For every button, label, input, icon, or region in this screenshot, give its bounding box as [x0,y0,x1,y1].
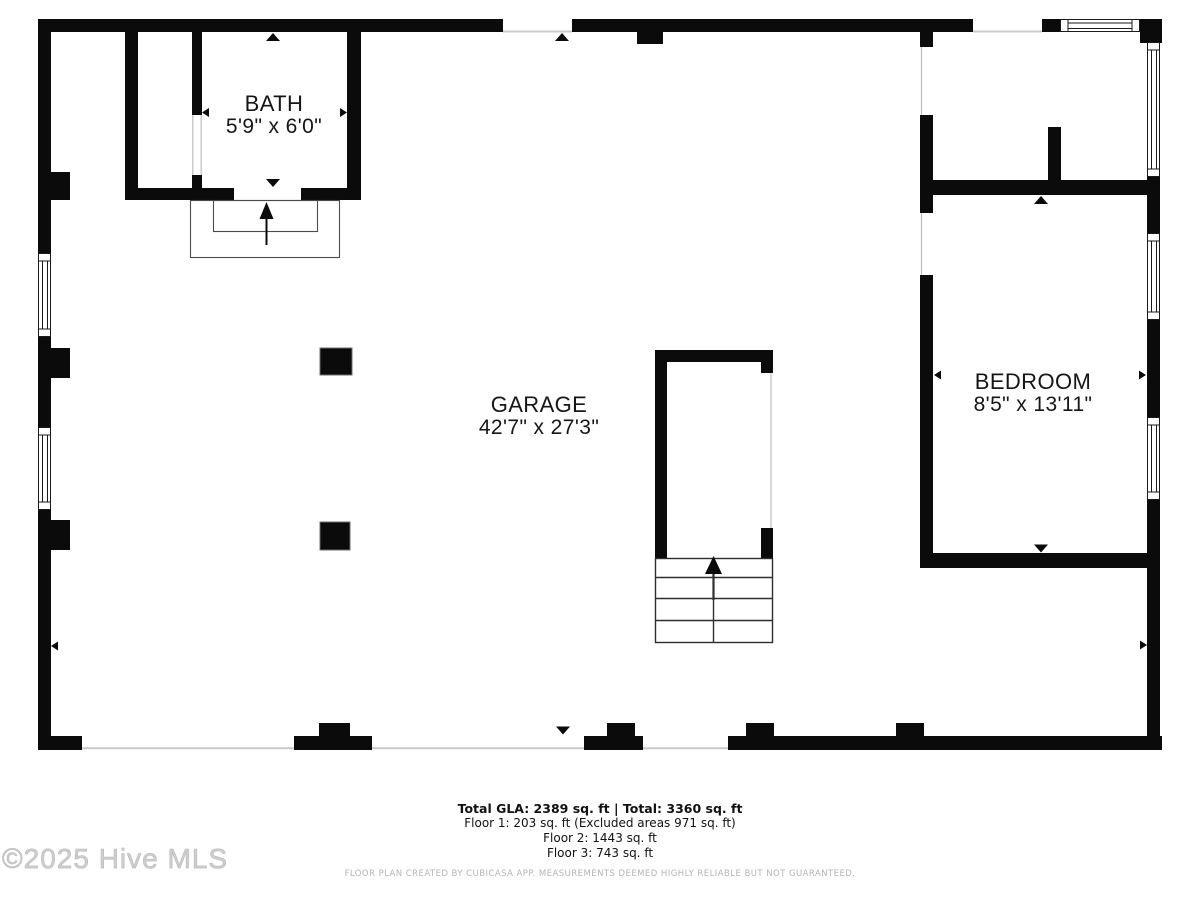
wall-segment [38,19,51,253]
dim-arrow-up [1034,196,1048,204]
stair-direction-arrow [260,202,274,219]
dim-arrow-up [555,33,569,41]
columns [320,348,352,550]
bath-landing-steps [191,201,340,258]
wall-stub [896,723,924,736]
room-dimensions: 5'9" x 6'0" [164,115,384,138]
wall-segment [125,32,138,188]
dim-arrow-up [266,33,280,41]
wall-segment [655,350,667,568]
column [320,522,350,550]
wall-segment [728,736,1162,750]
room-name: BEDROOM [883,370,1183,393]
closet-partition-wall [1048,127,1061,195]
window [1148,418,1160,500]
wall-segment [1042,19,1060,32]
garage-door-pier [294,736,372,750]
bedroom-bottom-wall [920,553,1148,568]
total-gla-line: Total GLA: 2389 sq. ft | Total: 3360 sq.… [0,801,1200,816]
wall-stub [319,723,350,736]
wall-segment [920,115,933,213]
floor1-line: Floor 1: 203 sq. ft (Excluded areas 971 … [0,816,1200,831]
wall-segment [761,350,773,373]
wall-stub [607,723,635,736]
window [39,428,51,510]
column [320,348,352,375]
dim-arrow-down [556,727,570,735]
wall-stub [920,32,933,47]
window [39,254,51,337]
wall-segment [38,510,51,750]
wall-segment [655,350,773,362]
room-label-bedroom: BEDROOM 8'5" x 13'11" [883,370,1183,416]
main-staircase [656,556,773,643]
wall-stub [51,172,70,200]
room-dimensions: 42'7" x 27'3" [399,416,679,439]
wall-segment [1140,19,1162,43]
stairwell-walls [655,350,773,568]
floor-plan-page: BATH 5'9" x 6'0" GARAGE 42'7" x 27'3" BE… [0,0,1200,900]
wall-stub [746,723,774,736]
wall-segment [38,337,51,427]
wall-segment [38,736,82,750]
wall-segment [572,19,973,32]
window [1148,43,1160,177]
dim-arrow-down [1034,545,1048,553]
room-label-bath: BATH 5'9" x 6'0" [164,92,384,138]
wall-segment [301,188,361,200]
wall-segment [125,188,234,200]
wall-stub [637,32,663,44]
dim-arrow-down [266,179,280,187]
wall-stub [51,348,70,378]
garage-door-pier [584,736,643,750]
bedroom-top-wall [933,180,1147,195]
mls-watermark: ©2025 Hive MLS [2,843,228,875]
room-dimensions: 8'5" x 13'11" [883,393,1183,416]
wall-stub [51,520,70,550]
wall-segment [1147,500,1160,750]
dim-arrow-left [51,642,58,651]
room-name: BATH [164,92,384,115]
partition-walls [920,32,1148,568]
room-name: GARAGE [399,393,679,416]
wall-segment [1147,177,1160,233]
dim-arrow-right [1140,641,1147,650]
wall-segment [38,19,503,32]
window [1061,20,1140,32]
room-label-garage: GARAGE 42'7" x 27'3" [399,393,679,439]
window [1148,234,1160,320]
